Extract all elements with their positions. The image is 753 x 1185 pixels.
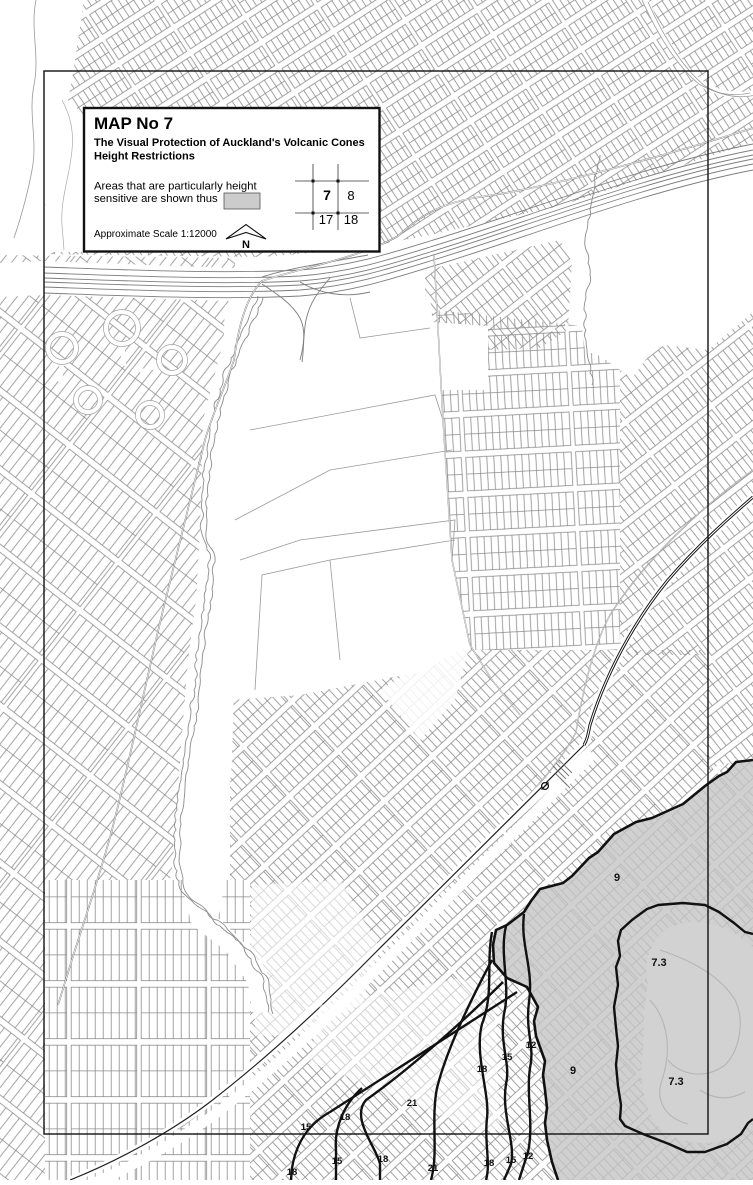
svg-text:18: 18 xyxy=(287,1167,298,1178)
svg-text:7.3: 7.3 xyxy=(651,957,666,969)
svg-text:7.3: 7.3 xyxy=(668,1076,683,1088)
svg-text:N: N xyxy=(242,239,250,251)
svg-text:15: 15 xyxy=(502,1052,513,1063)
svg-text:15: 15 xyxy=(506,1155,517,1166)
svg-text:8: 8 xyxy=(347,188,354,203)
svg-text:18: 18 xyxy=(340,1112,351,1123)
svg-text:Approximate Scale 1:12000: Approximate Scale 1:12000 xyxy=(94,229,217,240)
svg-text:7: 7 xyxy=(323,187,331,203)
svg-text:17: 17 xyxy=(319,212,333,227)
svg-text:21: 21 xyxy=(407,1098,418,1109)
svg-text:12: 12 xyxy=(526,1040,537,1051)
svg-text:Height Restrictions: Height Restrictions xyxy=(94,151,195,163)
svg-text:9: 9 xyxy=(614,872,620,884)
svg-text:15: 15 xyxy=(332,1156,343,1167)
svg-text:Areas that are particularly he: Areas that are particularly height xyxy=(94,181,257,193)
svg-text:18: 18 xyxy=(484,1158,495,1169)
svg-text:18: 18 xyxy=(477,1064,488,1075)
svg-text:15: 15 xyxy=(301,1122,312,1133)
svg-text:sensitive are shown thus: sensitive are shown thus xyxy=(94,193,218,205)
svg-text:MAP No 7: MAP No 7 xyxy=(94,114,173,133)
svg-text:The Visual Protection of Auckl: The Visual Protection of Auckland's Volc… xyxy=(94,137,365,149)
svg-text:21: 21 xyxy=(428,1163,439,1174)
svg-text:18: 18 xyxy=(378,1154,389,1165)
svg-text:18: 18 xyxy=(344,212,358,227)
svg-text:9: 9 xyxy=(570,1065,576,1077)
svg-text:12: 12 xyxy=(523,1151,534,1162)
